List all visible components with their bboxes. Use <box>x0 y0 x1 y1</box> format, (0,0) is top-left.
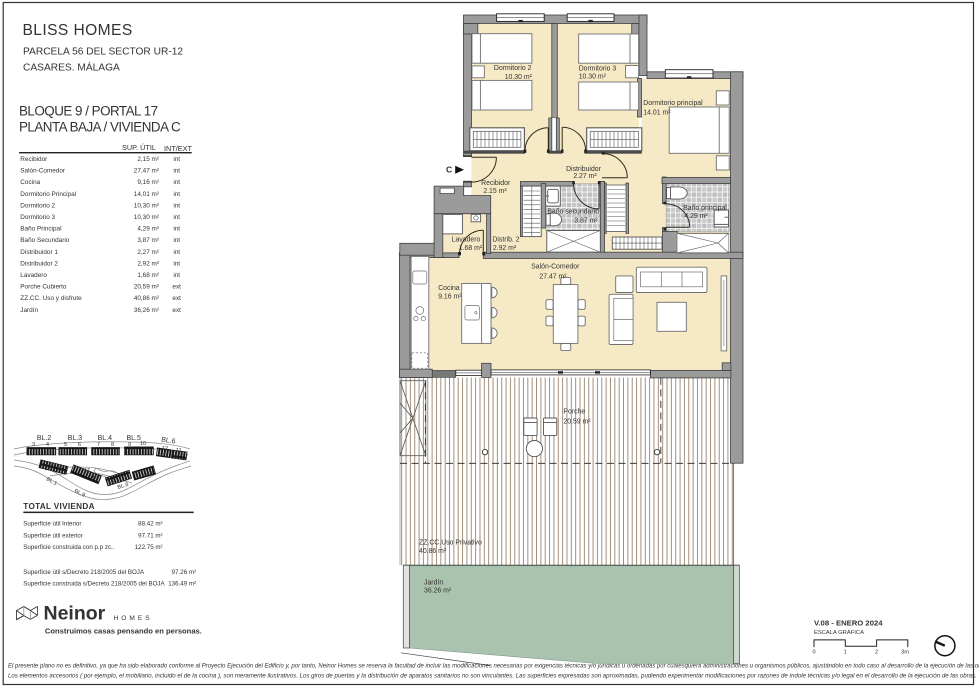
svg-text:Distribuidor 2: Distribuidor 2 <box>20 260 58 267</box>
svg-text:int: int <box>173 179 180 186</box>
svg-text:C: C <box>446 165 452 175</box>
svg-text:ext: ext <box>172 295 181 302</box>
svg-text:Baño Secundario: Baño Secundario <box>20 237 69 244</box>
svg-text:BL.4: BL.4 <box>98 435 113 442</box>
svg-text:16: 16 <box>92 474 98 480</box>
svg-text:Lavadero: Lavadero <box>20 272 47 279</box>
svg-text:Jardín: Jardín <box>424 580 443 587</box>
svg-text:4: 4 <box>46 442 49 448</box>
svg-text:ZZ.CC.Uso Privativo: ZZ.CC.Uso Privativo <box>419 539 482 546</box>
svg-text:Dormitorio 2: Dormitorio 2 <box>494 65 532 72</box>
svg-text:4.29 m²: 4.29 m² <box>684 213 708 220</box>
svg-text:136.49 m²: 136.49 m² <box>168 581 196 588</box>
svg-text:Recibidor: Recibidor <box>481 180 511 187</box>
svg-text:INT/EXT: INT/EXT <box>164 144 193 153</box>
svg-text:36.26 m²: 36.26 m² <box>424 588 452 595</box>
svg-text:8: 8 <box>111 442 114 448</box>
svg-text:BL.5: BL.5 <box>127 435 142 442</box>
svg-text:15: 15 <box>108 479 114 485</box>
svg-text:2.15 m²: 2.15 m² <box>483 188 507 195</box>
svg-text:10,30 m²: 10,30 m² <box>134 202 159 209</box>
svg-text:HOMES: HOMES <box>114 615 153 622</box>
svg-text:El presente plano no es defini: El presente plano no es definitivo, ya q… <box>8 664 979 670</box>
svg-text:Distribuidor 1: Distribuidor 1 <box>20 249 58 256</box>
svg-text:36,26 m²: 36,26 m² <box>134 307 159 314</box>
svg-text:27,47 m²: 27,47 m² <box>134 168 159 175</box>
svg-text:Recibidor: Recibidor <box>20 156 48 163</box>
svg-text:Porche: Porche <box>563 408 585 415</box>
svg-text:Lavadero: Lavadero <box>452 236 481 243</box>
svg-text:Neinor: Neinor <box>44 603 106 625</box>
svg-text:Baño Principal: Baño Principal <box>20 226 61 233</box>
svg-text:int: int <box>173 168 180 175</box>
svg-text:2.92 m²: 2.92 m² <box>493 245 517 252</box>
svg-text:Dormitorio Principal: Dormitorio Principal <box>20 191 76 198</box>
svg-text:Distrib. 2: Distrib. 2 <box>492 236 519 243</box>
svg-text:BL.2: BL.2 <box>37 435 52 442</box>
svg-text:int: int <box>173 202 180 209</box>
svg-text:PARCELA 56 DEL SECTOR UR-12: PARCELA 56 DEL SECTOR UR-12 <box>23 47 183 58</box>
svg-text:Distribuidor: Distribuidor <box>566 166 602 173</box>
svg-text:Superficie útil exterior: Superficie útil exterior <box>23 532 83 539</box>
svg-text:0: 0 <box>812 650 815 656</box>
svg-text:17: 17 <box>84 468 90 474</box>
svg-text:V.08 - ENERO 2024: V.08 - ENERO 2024 <box>814 619 883 628</box>
svg-text:27.47 m²: 27.47 m² <box>539 273 567 280</box>
svg-text:int: int <box>173 237 180 244</box>
svg-text:11: 11 <box>176 448 182 454</box>
svg-text:97.71 m²: 97.71 m² <box>138 532 162 539</box>
svg-text:Los elementos accesorios ( po: Los elementos accesorios ( por ejemplo, … <box>8 673 977 680</box>
svg-text:9: 9 <box>128 442 131 448</box>
svg-text:SUP. ÚTIL: SUP. ÚTIL <box>122 143 156 152</box>
svg-text:2: 2 <box>875 650 878 656</box>
svg-text:3.87 m²: 3.87 m² <box>574 217 598 224</box>
svg-text:1.68 m²: 1.68 m² <box>459 245 483 252</box>
svg-text:12: 12 <box>162 446 168 452</box>
svg-text:14,01 m²: 14,01 m² <box>134 191 159 198</box>
svg-text:int: int <box>173 156 180 163</box>
svg-text:Dormitorio 3: Dormitorio 3 <box>20 214 55 221</box>
svg-text:5: 5 <box>64 442 67 448</box>
svg-text:2.27 m²: 2.27 m² <box>573 173 597 180</box>
svg-text:3m: 3m <box>901 650 909 656</box>
svg-text:20,59 m²: 20,59 m² <box>134 284 159 291</box>
svg-text:ESCALA GRÁFICA: ESCALA GRÁFICA <box>814 629 864 636</box>
svg-text:Salón-Comedor: Salón-Comedor <box>20 168 66 175</box>
svg-text:Superficie útil Interior: Superficie útil Interior <box>23 521 81 528</box>
svg-text:Dormitorio 2: Dormitorio 2 <box>20 202 55 209</box>
svg-text:3: 3 <box>32 442 35 448</box>
svg-text:ZZ.CC. Uso y disfrute: ZZ.CC. Uso y disfrute <box>20 295 82 302</box>
svg-text:int: int <box>173 191 180 198</box>
svg-text:int: int <box>173 272 180 279</box>
svg-text:2,27 m²: 2,27 m² <box>137 249 159 256</box>
svg-text:10.30 m²: 10.30 m² <box>505 74 533 81</box>
svg-text:2,92 m²: 2,92 m² <box>137 260 159 267</box>
svg-text:Dormitorio principal: Dormitorio principal <box>643 100 703 107</box>
svg-text:4,29 m²: 4,29 m² <box>137 226 159 233</box>
svg-text:1,68 m²: 1,68 m² <box>137 272 159 279</box>
svg-text:BLISS HOMES: BLISS HOMES <box>23 22 133 39</box>
svg-text:40,86 m²: 40,86 m² <box>134 295 159 302</box>
svg-text:Superficie construida con p.p: Superficie construida con p.p zc.. <box>23 544 114 551</box>
svg-text:PLANTA BAJA / VIVIENDA C: PLANTA BAJA / VIVIENDA C <box>19 120 181 135</box>
svg-text:9,16 m²: 9,16 m² <box>137 179 159 186</box>
svg-text:Dormitorio 3: Dormitorio 3 <box>579 66 617 73</box>
svg-text:20.59 m²: 20.59 m² <box>563 418 591 425</box>
svg-text:Jardín: Jardín <box>20 307 38 314</box>
svg-text:88.42 m²: 88.42 m² <box>138 521 162 528</box>
svg-text:2,15 m²: 2,15 m² <box>137 156 159 163</box>
svg-text:Construimos casas pensando en: Construimos casas pensando en personas. <box>45 627 202 636</box>
svg-text:int: int <box>173 260 180 267</box>
svg-text:122.75 m²: 122.75 m² <box>135 544 163 551</box>
svg-text:int: int <box>173 214 180 221</box>
svg-text:Baño principal: Baño principal <box>683 205 727 212</box>
svg-text:10: 10 <box>140 441 146 447</box>
svg-text:int: int <box>173 249 180 256</box>
svg-text:Superficie construida s/Decret: Superficie construida s/Decreto 218/2005… <box>23 581 165 588</box>
svg-text:9.16 m²: 9.16 m² <box>438 294 462 301</box>
svg-text:Cocina: Cocina <box>438 285 460 292</box>
svg-text:97.26 m²: 97.26 m² <box>172 569 196 576</box>
svg-text:3,87 m²: 3,87 m² <box>137 237 159 244</box>
svg-text:BLOQUE 9 / PORTAL 17: BLOQUE 9 / PORTAL 17 <box>19 104 158 119</box>
svg-text:40.86 m²: 40.86 m² <box>419 548 447 555</box>
svg-text:TOTAL VIVIENDA: TOTAL VIVIENDA <box>23 502 95 511</box>
svg-text:ext: ext <box>172 307 181 314</box>
svg-text:1: 1 <box>844 650 847 656</box>
svg-text:10,30 m²: 10,30 m² <box>134 214 159 221</box>
svg-text:6: 6 <box>78 442 81 448</box>
svg-text:Salón-Comedor: Salón-Comedor <box>531 263 580 270</box>
svg-text:Superficie útil s/Decreto 218/: Superficie útil s/Decreto 218/2005 del B… <box>23 569 145 576</box>
svg-text:Baño secundario: Baño secundario <box>547 209 599 216</box>
svg-text:10.30 m²: 10.30 m² <box>579 74 607 81</box>
svg-text:BL.3: BL.3 <box>68 435 83 442</box>
svg-text:Cocina: Cocina <box>20 179 40 186</box>
svg-text:ext: ext <box>172 284 181 291</box>
svg-text:14.01 m²: 14.01 m² <box>643 109 671 116</box>
svg-text:CASARES. MÁLAGA: CASARES. MÁLAGA <box>23 61 120 74</box>
svg-text:Porche Cubierto: Porche Cubierto <box>20 284 67 291</box>
svg-text:int: int <box>173 226 180 233</box>
svg-text:7: 7 <box>97 442 100 448</box>
